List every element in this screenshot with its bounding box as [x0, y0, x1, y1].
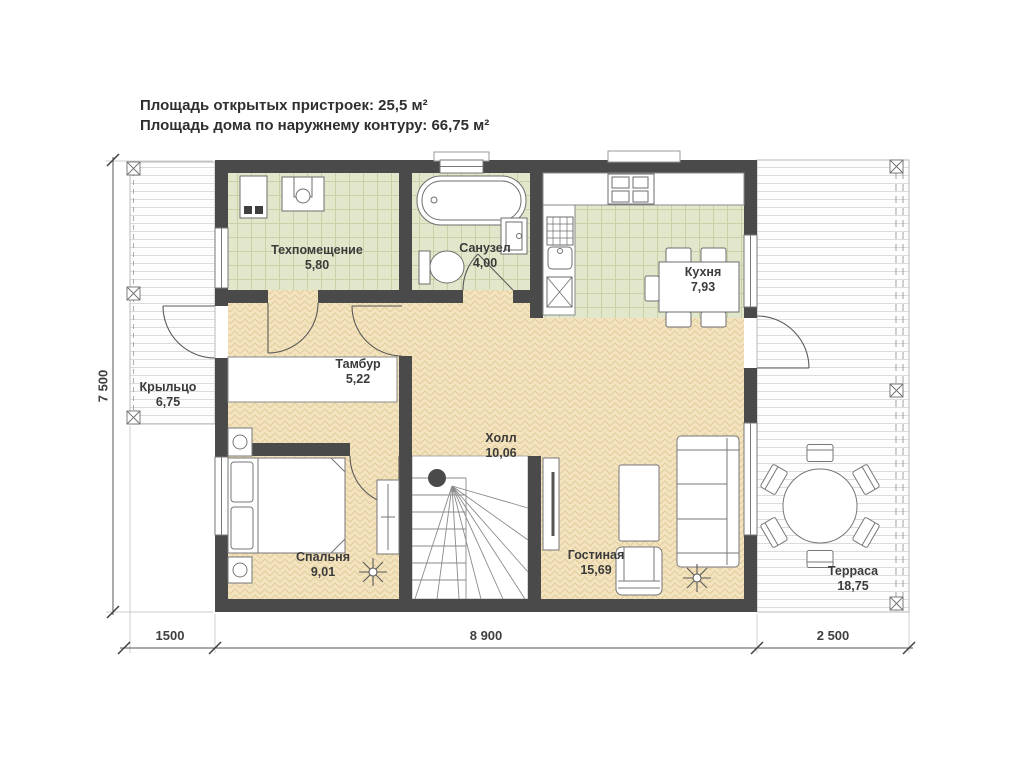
room-name-bedroom: Спальня — [296, 550, 350, 565]
room-label-hall: Холл 10,06 — [485, 431, 516, 461]
room-area-tech: 5,80 — [271, 258, 363, 273]
window-bedroom-left — [215, 457, 228, 535]
room-area-kitchen: 7,93 — [685, 280, 722, 295]
room-label-bath: Санузел 4,00 — [459, 241, 510, 271]
room-label-terrace: Терраса 18,75 — [828, 564, 878, 594]
wardrobe — [377, 480, 399, 554]
room-name-tech: Техпомещение — [271, 243, 363, 258]
plant-living — [683, 564, 711, 592]
room-area-porch: 6,75 — [140, 395, 197, 410]
window-kitchen-right — [744, 235, 757, 307]
dim-house-width: 8 900 — [470, 628, 503, 643]
room-area-terrace: 18,75 — [828, 579, 878, 594]
room-name-porch: Крыльцо — [140, 380, 197, 395]
room-name-bath: Санузел — [459, 241, 510, 256]
room-label-bedroom: Спальня 9,01 — [296, 550, 350, 580]
room-label-kitchen: Кухня 7,93 — [685, 265, 722, 295]
room-area-tambour: 5,22 — [335, 372, 380, 387]
window-tech-left — [215, 228, 228, 288]
floor-plan-scene: Площадь открытых пристроек: 25,5 м² Площ… — [0, 0, 1024, 768]
room-label-porch: Крыльцо 6,75 — [140, 380, 197, 410]
stair-newel-post — [428, 469, 446, 487]
room-name-hall: Холл — [485, 431, 516, 446]
room-area-bath: 4,00 — [459, 256, 510, 271]
room-name-tambour: Тамбур — [335, 357, 380, 372]
stove — [608, 174, 654, 204]
kitchen-cabinet — [547, 277, 572, 307]
room-area-living: 15,69 — [568, 563, 625, 578]
dim-porch-width: 1500 — [156, 628, 185, 643]
room-label-tambour: Тамбур 5,22 — [335, 357, 380, 387]
window-living-right — [744, 423, 757, 535]
room-area-bedroom: 9,01 — [296, 565, 350, 580]
tv-panel — [543, 458, 559, 550]
utility-sink — [282, 177, 324, 211]
window-bathroom-top — [434, 152, 489, 173]
room-label-tech: Техпомещение 5,80 — [271, 243, 363, 273]
room-label-living: Гостиная 15,69 — [568, 548, 625, 578]
room-area-hall: 10,06 — [485, 446, 516, 461]
kitchen-sink — [547, 217, 573, 269]
title-open-extensions-area: Площадь открытых пристроек: 25,5 м² — [140, 97, 428, 114]
toilet — [419, 251, 464, 284]
bed — [228, 458, 345, 553]
dim-terrace-width: 2 500 — [817, 628, 850, 643]
plant-bedroom — [359, 558, 387, 586]
dim-house-height: 7 500 — [96, 370, 111, 403]
vent-kitchen-top — [608, 151, 680, 162]
sofa — [677, 436, 739, 567]
room-name-terrace: Терраса — [828, 564, 878, 579]
coffee-table — [619, 465, 659, 541]
nightstand-top — [228, 428, 252, 456]
room-name-living: Гостиная — [568, 548, 625, 563]
title-house-outline-area: Площадь дома по наружнему контуру: 66,75… — [140, 117, 489, 134]
terrace-round-table — [783, 469, 857, 543]
room-name-kitchen: Кухня — [685, 265, 722, 280]
nightstand-bottom — [228, 557, 252, 583]
washing-machine — [240, 176, 267, 218]
